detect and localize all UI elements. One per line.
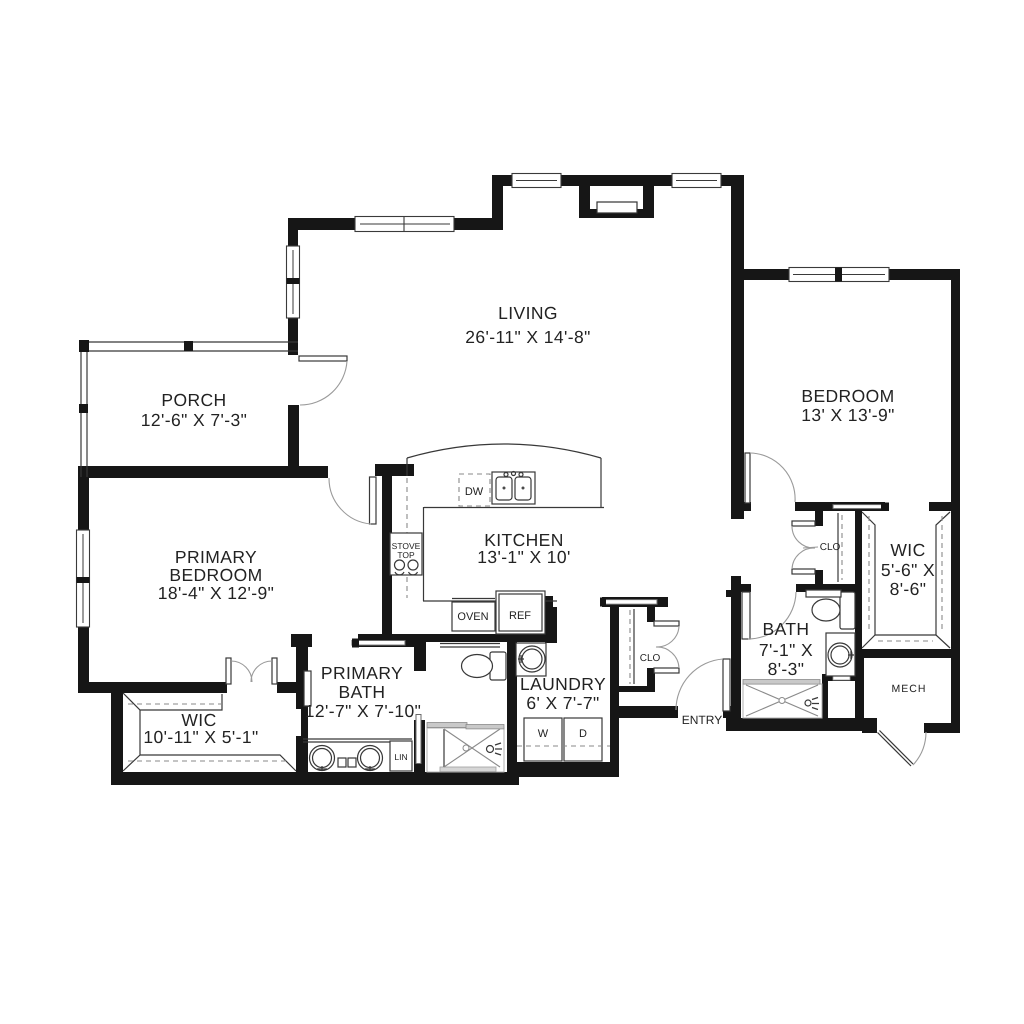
svg-text:7'-1" X: 7'-1" X [759, 640, 813, 660]
svg-text:6' X 7'-7": 6' X 7'-7" [526, 693, 599, 713]
svg-text:18'-4" X 12'-9": 18'-4" X 12'-9" [158, 583, 275, 603]
svg-text:BEDROOM: BEDROOM [169, 565, 262, 585]
svg-text:12'-7" X 7'-10": 12'-7" X 7'-10" [305, 701, 422, 721]
svg-text:5'-6" X: 5'-6" X [881, 560, 935, 580]
svg-text:D: D [579, 728, 587, 740]
svg-text:PRIMARY: PRIMARY [175, 547, 257, 567]
svg-text:LIN: LIN [394, 752, 407, 762]
svg-text:8'-6": 8'-6" [890, 579, 927, 599]
svg-text:12'-6" X 7'-3": 12'-6" X 7'-3" [141, 410, 247, 430]
svg-text:13' X 13'-9": 13' X 13'-9" [801, 405, 895, 425]
svg-text:PRIMARY: PRIMARY [321, 663, 403, 683]
svg-text:BEDROOM: BEDROOM [801, 386, 894, 406]
svg-text:8'-3": 8'-3" [768, 659, 805, 679]
svg-text:BATH: BATH [339, 682, 386, 702]
svg-text:26'-11" X 14'-8": 26'-11" X 14'-8" [465, 327, 590, 347]
svg-text:MECH: MECH [892, 683, 927, 695]
svg-text:W: W [538, 728, 549, 740]
svg-text:TOP: TOP [397, 550, 415, 560]
svg-text:10'-11" X 5'-1": 10'-11" X 5'-1" [143, 727, 258, 747]
svg-text:BATH: BATH [763, 619, 810, 639]
svg-text:DW: DW [465, 486, 484, 498]
svg-text:REF: REF [509, 610, 531, 622]
svg-text:13'-1" X 10': 13'-1" X 10' [477, 547, 571, 567]
svg-text:CLO: CLO [640, 653, 661, 664]
svg-text:LAUNDRY: LAUNDRY [520, 674, 606, 694]
svg-text:CLO: CLO [820, 542, 841, 553]
svg-text:LIVING: LIVING [498, 303, 558, 323]
svg-text:ENTRY: ENTRY [682, 713, 722, 727]
svg-text:PORCH: PORCH [161, 390, 226, 410]
svg-text:WIC: WIC [890, 540, 925, 560]
svg-text:OVEN: OVEN [457, 611, 488, 623]
